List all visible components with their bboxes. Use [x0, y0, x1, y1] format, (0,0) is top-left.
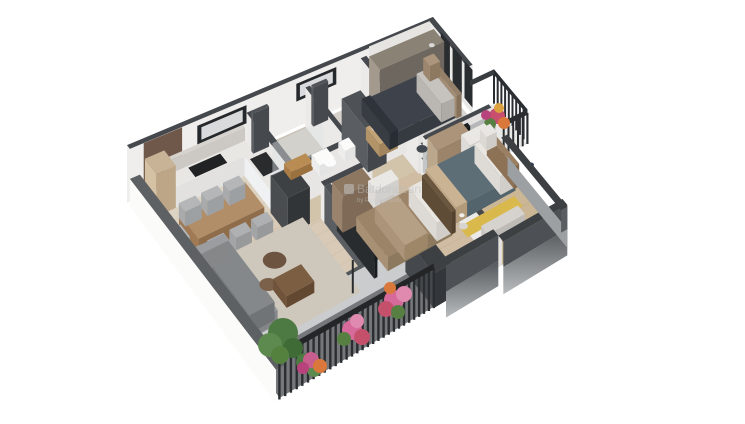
svg-text:by PropertyGuru: by PropertyGuru	[357, 198, 401, 204]
svg-text:Batdongsan: Batdongsan	[357, 182, 421, 196]
